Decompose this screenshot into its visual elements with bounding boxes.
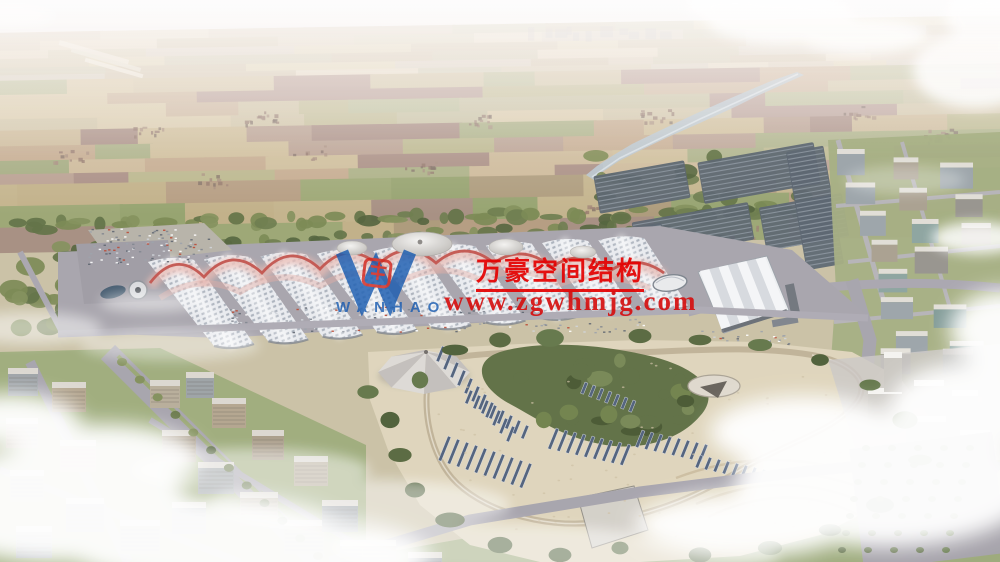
aerial-rendering-exhibition-complex: WANHAO 万豪空间结构 www.zgwhmjg.com xyxy=(0,0,1000,562)
logo-wordmark: WANHAO xyxy=(336,299,446,316)
website-url-watermark: www.zgwhmjg.com xyxy=(444,286,697,317)
